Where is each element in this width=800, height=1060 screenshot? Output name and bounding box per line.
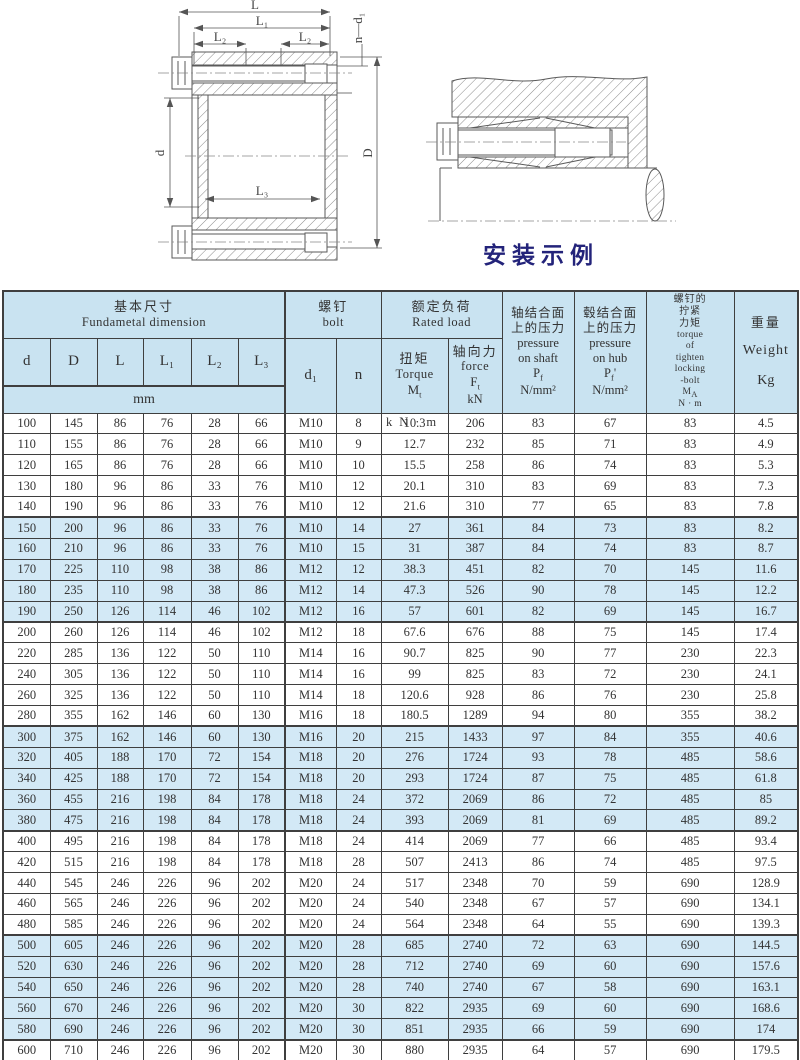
installation-drawing [437,77,664,221]
table-cell: 60 [191,705,238,726]
table-cell: 225 [50,559,97,580]
table-cell: 98 [143,559,191,580]
table-cell: 67.6 [381,622,448,643]
table-cell: 75 [574,622,646,643]
table-cell: M10 [285,413,336,434]
table-cell: 76 [238,497,285,518]
table-cell: 2348 [448,873,502,894]
table-cell: 202 [238,935,285,956]
table-cell: 47.3 [381,580,448,601]
table-cell: 76 [143,434,191,455]
table-cell: 825 [448,643,502,664]
table-cell: 372 [381,789,448,810]
table-cell: 690 [646,1019,734,1040]
table-row: 46056524622696202M202454023486757690134.… [3,893,798,914]
table-cell: M20 [285,1040,336,1060]
table-cell: 102 [238,622,285,643]
table-cell: 198 [143,852,191,873]
table-row: 32040518817072154M18202761724937848558.6 [3,747,798,768]
table-cell: 96 [97,538,143,559]
table-cell: 600 [3,1040,50,1060]
table-cell: 650 [50,977,97,998]
table-cell: 86 [97,455,143,476]
table-cell: 300 [3,726,50,747]
table-cell: 380 [3,810,50,831]
table-cell: 126 [97,601,143,622]
table-cell: 740 [381,977,448,998]
table-cell: 928 [448,685,502,706]
table-cell: 325 [50,685,97,706]
table-cell: 33 [191,476,238,497]
table-row: 56067024622696202M203082229356960690168.… [3,998,798,1019]
table-cell: 27 [381,517,448,538]
table-cell: 69 [574,810,646,831]
table-cell: 485 [646,768,734,789]
table-cell: 24 [336,789,381,810]
table-cell: 825 [448,664,502,685]
table-cell: 83 [502,664,574,685]
table-cell: 375 [50,726,97,747]
table-cell: 97 [502,726,574,747]
table-cell: 64 [502,1040,574,1060]
table-cell: 20 [336,747,381,768]
table-cell: 198 [143,810,191,831]
table-cell: 30 [336,1019,381,1040]
label-D: D [360,148,375,157]
table-cell: 120.6 [381,685,448,706]
table-cell: 83 [646,455,734,476]
table-cell: 226 [143,1040,191,1060]
table-cell: 246 [97,1040,143,1060]
table-cell: 605 [50,935,97,956]
table-cell: 235 [50,580,97,601]
table-cell: 78 [574,580,646,601]
table-cell: 226 [143,1019,191,1040]
table-cell: 230 [646,685,734,706]
table-cell: 226 [143,956,191,977]
table-cell: 72 [191,747,238,768]
table-cell: 83 [502,476,574,497]
table-cell: 84 [502,538,574,559]
table-cell: 63 [574,935,646,956]
table-cell: 170 [143,768,191,789]
table-cell: 355 [646,726,734,747]
table-cell: 180 [50,476,97,497]
table-cell: 57 [381,601,448,622]
torque-unit-overflow: kN·m [382,415,448,430]
table-cell: 71 [574,434,646,455]
table-cell: 114 [143,622,191,643]
table-cell: 540 [381,893,448,914]
table-cell: 690 [50,1019,97,1040]
label-L3: L₃ [256,183,268,198]
table-cell: 94 [502,705,574,726]
table-row: 11015586762866M10912.72328571834.9 [3,434,798,455]
table-cell: 28 [336,852,381,873]
table-cell: 5.3 [734,455,798,476]
table-cell: 200 [3,622,50,643]
table-cell: 90 [502,580,574,601]
table-cell: 517 [381,873,448,894]
table-cell: 560 [3,998,50,1019]
col-header-d: d [3,338,50,386]
table-cell: 8.7 [734,538,798,559]
table-cell: M18 [285,852,336,873]
table-cell: 451 [448,559,502,580]
table-cell: 40.6 [734,726,798,747]
table-cell: 178 [238,852,285,873]
table-cell: 20 [336,726,381,747]
table-row: 180235110983886M121447.3526907814512.2 [3,580,798,601]
table-cell: 485 [646,789,734,810]
table-row: 15020096863376M1014273618473838.2 [3,517,798,538]
table-cell: 170 [143,747,191,768]
table-cell: 220 [3,643,50,664]
col-header-D: D [50,338,97,386]
table-cell: 86 [238,580,285,601]
table-cell: 1724 [448,768,502,789]
table-cell: 160 [3,538,50,559]
table-cell: 140 [3,497,50,518]
table-cell: 202 [238,956,285,977]
table-cell: 110 [97,559,143,580]
header-weight: 重量 Weight Kg [734,291,798,413]
table-cell: M14 [285,643,336,664]
table-cell: 12.7 [381,434,448,455]
table-cell: 83 [646,538,734,559]
table-cell: 202 [238,998,285,1019]
table-cell: 83 [646,517,734,538]
label-L: L [251,0,259,12]
table-cell: 25.8 [734,685,798,706]
table-cell: 66 [574,831,646,852]
table-cell: 83 [646,476,734,497]
table-cell: 179.5 [734,1040,798,1060]
table-cell: 122 [143,685,191,706]
table-row: 36045521619884178M18243722069867248585 [3,789,798,810]
table-cell: M16 [285,705,336,726]
table-cell: 136 [97,685,143,706]
table-cell: 310 [448,476,502,497]
table-cell: 97.5 [734,852,798,873]
table-cell: 38 [191,559,238,580]
table-cell: 230 [646,643,734,664]
dimension-lines [164,12,382,248]
col-header-L: L [97,338,143,386]
table-cell: 178 [238,810,285,831]
table-cell: 16 [336,601,381,622]
table-cell: 240 [3,664,50,685]
table-cell: 146 [143,705,191,726]
section-drawing: L L₁ L₂ L₂ L₃ n—d₁ d D [0,0,800,290]
table-cell: M12 [285,559,336,580]
table-cell: 66 [238,434,285,455]
table-cell: 246 [97,1019,143,1040]
table-row: 28035516214660130M1618180.51289948035538… [3,705,798,726]
header-tightening-torque: 螺钉的 拧紧 力矩 torque of tighten locking -bol… [646,291,734,413]
table-cell: 86 [502,852,574,873]
table-cell: 84 [191,831,238,852]
table-cell: 250 [50,601,97,622]
table-cell: 83 [646,497,734,518]
table-cell: 690 [646,956,734,977]
table-cell: 33 [191,497,238,518]
table-cell: 202 [238,893,285,914]
table-cell: 96 [97,497,143,518]
table-cell: 86 [502,455,574,476]
table-cell: 16.7 [734,601,798,622]
table-cell: 76 [143,455,191,476]
table-cell: 232 [448,434,502,455]
table-cell: 18 [336,685,381,706]
table-cell: M14 [285,685,336,706]
header-rated-load: 额定负荷 Rated load [381,291,502,338]
table-cell: 28 [336,977,381,998]
table-row: 14019096863376M101221.63107765837.8 [3,497,798,518]
table-cell: 246 [97,914,143,935]
table-cell: 120 [3,455,50,476]
table-cell: 72 [191,768,238,789]
table-cell: 168.6 [734,998,798,1019]
table-cell: 206 [448,413,502,434]
table-cell: 85 [502,434,574,455]
table-cell: 84 [574,726,646,747]
table-cell: 89.2 [734,810,798,831]
table-cell: 77 [574,643,646,664]
table-cell: 564 [381,914,448,935]
locking-assembly-section [172,52,337,260]
table-cell: 78 [574,747,646,768]
table-cell: 485 [646,810,734,831]
table-cell: 76 [143,413,191,434]
table-cell: 85 [734,789,798,810]
table-cell: 188 [97,768,143,789]
table-cell: 10 [336,455,381,476]
table-cell: M12 [285,622,336,643]
table-cell: 82 [502,559,574,580]
table-cell: 822 [381,998,448,1019]
table-cell: 202 [238,1019,285,1040]
header-basic-dimension: 基本尺寸 Fundametal dimension [3,291,285,338]
table-cell: 2069 [448,810,502,831]
table-cell: 128.9 [734,873,798,894]
table-cell: 545 [50,873,97,894]
unit-mm-cell: mm [3,386,285,413]
table-cell: 93 [502,747,574,768]
table-cell: 174 [734,1019,798,1040]
table-cell: 83 [502,413,574,434]
table-cell: 12 [336,559,381,580]
table-cell: 72 [574,789,646,810]
col-header-L2: L₂ [191,338,238,386]
table-row: 170225110983886M121238.3451827014511.6 [3,559,798,580]
table-cell: 360 [3,789,50,810]
table-cell: 69 [502,998,574,1019]
table-cell: 90.7 [381,643,448,664]
table-row: 24030513612250110M141699825837223024.1 [3,664,798,685]
table-row: 26032513612250110M1418120.6928867623025.… [3,685,798,706]
table-cell: 69 [502,956,574,977]
table-cell: 81 [502,810,574,831]
drawing-area: L L₁ L₂ L₂ L₃ n—d₁ d D [0,0,800,290]
table-cell: 86 [238,559,285,580]
table-cell: 130 [238,726,285,747]
table-cell: M18 [285,747,336,768]
table-cell: 18 [336,622,381,643]
table-cell: 475 [50,810,97,831]
table-cell: 86 [143,538,191,559]
table-cell: 246 [97,935,143,956]
dimension-table: 基本尺寸 Fundametal dimension 螺钉 bolt 额定负荷 R… [2,290,799,1060]
table-cell: 540 [3,977,50,998]
table-cell: 55 [574,914,646,935]
drawing-caption: 安装示例 [483,236,643,270]
table-cell: 100 [3,413,50,434]
table-cell: 154 [238,747,285,768]
table-cell: 601 [448,601,502,622]
table-cell: 216 [97,831,143,852]
table-cell: 14 [336,580,381,601]
table-cell: 7.3 [734,476,798,497]
table-cell: 310 [448,497,502,518]
table-cell: M10 [285,517,336,538]
table-cell: 76 [574,685,646,706]
table-cell: 526 [448,580,502,601]
table-cell: 96 [191,893,238,914]
table-cell: 226 [143,977,191,998]
table-cell: 188 [97,747,143,768]
table-cell: 86 [502,685,574,706]
table-cell: 139.3 [734,914,798,935]
table-cell: M10 [285,434,336,455]
table-cell: 75 [574,768,646,789]
table-cell: 80 [574,705,646,726]
table-cell: M10 [285,497,336,518]
table-cell: 38 [191,580,238,601]
table-cell: 7.8 [734,497,798,518]
table-cell: 96 [191,873,238,894]
table-cell: 33 [191,517,238,538]
table-cell: 198 [143,831,191,852]
table-cell: 246 [97,893,143,914]
label-L2-left: L₂ [214,29,226,44]
table-cell: 2740 [448,956,502,977]
table-cell: 88 [502,622,574,643]
table-row: 30037516214660130M16202151433978435540.6 [3,726,798,747]
table-cell: 136 [97,643,143,664]
table-row: 20026012611446102M121867.6676887514517.4 [3,622,798,643]
table-cell: 163.1 [734,977,798,998]
table-cell: 76 [238,476,285,497]
table-row: 50060524622696202M202868527407263690144.… [3,935,798,956]
table-cell: 216 [97,789,143,810]
table-cell: 50 [191,685,238,706]
table-cell: 165 [50,455,97,476]
table-cell: 690 [646,998,734,1019]
table-cell: 425 [50,768,97,789]
table-cell: 150 [3,517,50,538]
table-row: 19025012611446102M121657601826914516.7 [3,601,798,622]
label-n-d1: n—d₁ [350,13,365,44]
table-cell: 59 [574,1019,646,1040]
table-cell: 226 [143,893,191,914]
table-cell: M12 [285,580,336,601]
table-cell: 110 [238,643,285,664]
table-cell: 400 [3,831,50,852]
table-cell: 83 [646,434,734,455]
table-cell: 260 [3,685,50,706]
table-cell: 258 [448,455,502,476]
table-cell: 60 [574,998,646,1019]
table-row: 60071024622696202M203088029356457690179.… [3,1040,798,1060]
table-row: 58069024622696202M203085129356659690174 [3,1019,798,1040]
datasheet-page: L L₁ L₂ L₂ L₃ n—d₁ d D [0,0,800,1060]
table-cell: 86 [143,476,191,497]
table-cell: 57 [574,893,646,914]
col-header-torque: 扭矩 Torque Mt kN·m [381,338,448,413]
table-cell: 361 [448,517,502,538]
header-bolt: 螺钉 bolt [285,291,381,338]
table-cell: 126 [97,622,143,643]
table-cell: 28 [191,455,238,476]
table-cell: 2935 [448,998,502,1019]
table-row: 52063024622696202M202871227406960690157.… [3,956,798,977]
table-cell: 24.1 [734,664,798,685]
table-cell: 500 [3,935,50,956]
table-cell: 246 [97,977,143,998]
table-cell: 110 [97,580,143,601]
table-cell: 8 [336,413,381,434]
table-cell: 145 [646,622,734,643]
table-cell: 67 [502,893,574,914]
table-cell: 210 [50,538,97,559]
table-cell: 87 [502,768,574,789]
table-cell: M20 [285,935,336,956]
table-cell: 690 [646,977,734,998]
table-cell: 86 [143,517,191,538]
table-cell: M18 [285,789,336,810]
table-cell: 685 [381,935,448,956]
table-cell: 880 [381,1040,448,1060]
table-cell: 96 [191,1019,238,1040]
table-cell: 690 [646,914,734,935]
table-cell: 2069 [448,789,502,810]
table-cell: 180.5 [381,705,448,726]
table-cell: 136 [97,664,143,685]
table-cell: 226 [143,873,191,894]
table-cell: M20 [285,998,336,1019]
table-cell: M18 [285,831,336,852]
table-row: 48058524622696202M202456423486455690139.… [3,914,798,935]
table-cell: 393 [381,810,448,831]
table-cell: 340 [3,768,50,789]
table-cell: 84 [191,810,238,831]
table-cell: 2740 [448,977,502,998]
table-cell: 38.3 [381,559,448,580]
table-cell: 216 [97,852,143,873]
table-cell: 15.5 [381,455,448,476]
table-row: 34042518817072154M18202931724877548561.8 [3,768,798,789]
header-pressure-hub: 毂结合面 上的压力 pressure on hub Pf' N/mm² [574,291,646,413]
table-cell: M10 [285,538,336,559]
col-header-force: 轴向力 force Ft kN [448,338,502,413]
table-cell: 2740 [448,935,502,956]
table-cell: 246 [97,873,143,894]
table-cell: 96 [97,476,143,497]
table-cell: 276 [381,747,448,768]
table-cell: 24 [336,831,381,852]
table-cell: M10 [285,476,336,497]
